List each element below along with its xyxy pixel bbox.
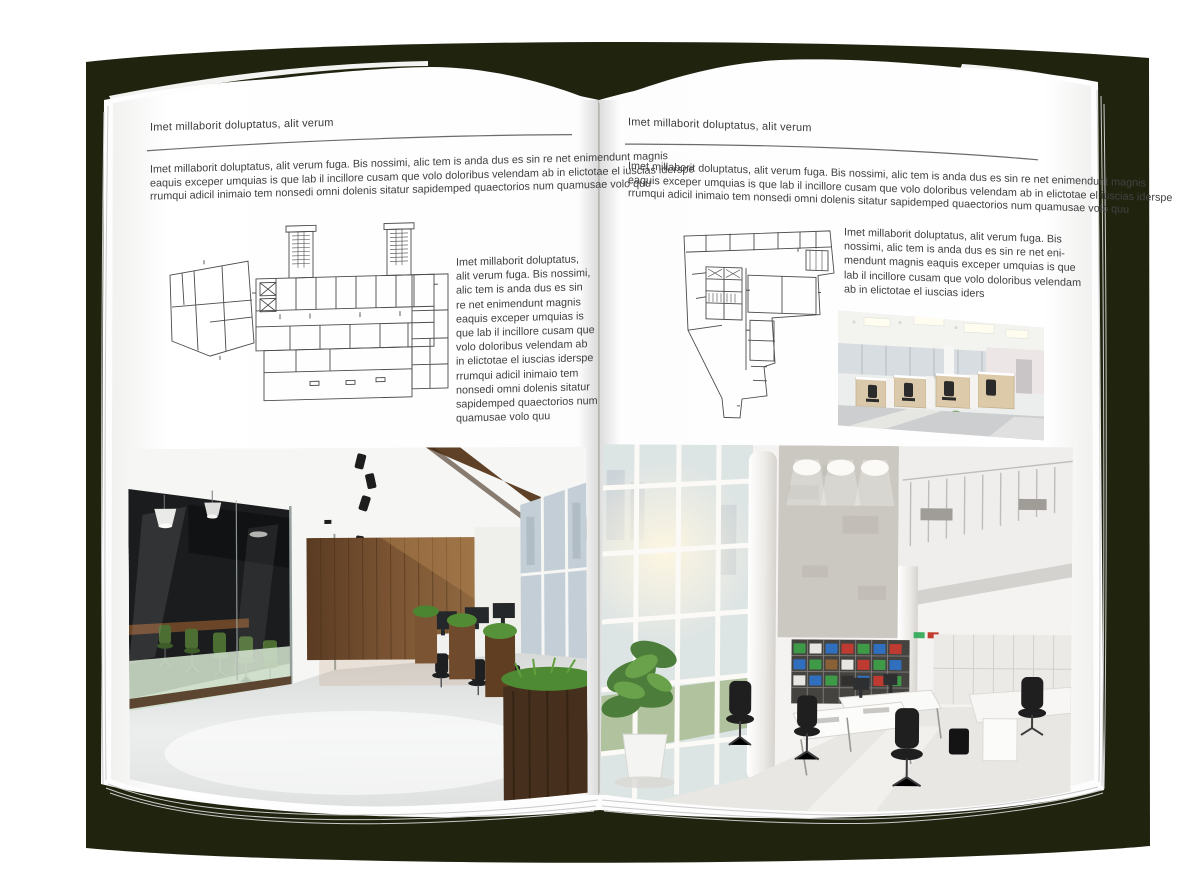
stair-hatch [292,229,408,268]
foreground-planter [501,658,588,810]
left-header-rule [146,131,574,154]
floor-plan-left-drawing [160,218,456,416]
right-side-paragraph: Imet millaborit doluptatus, alit verum f… [844,225,1081,304]
left-side-paragraph: Imet millaborit doluptatus, alit verum f… [456,252,598,426]
floor-plan-right-drawing [648,217,838,425]
right-page-content: Imet millaborit doluptatus, alit verum I… [622,116,1062,691]
right-header-rule [624,138,1040,164]
left-page-content: Imet millaborit doluptatus, alit verum I… [138,110,590,682]
